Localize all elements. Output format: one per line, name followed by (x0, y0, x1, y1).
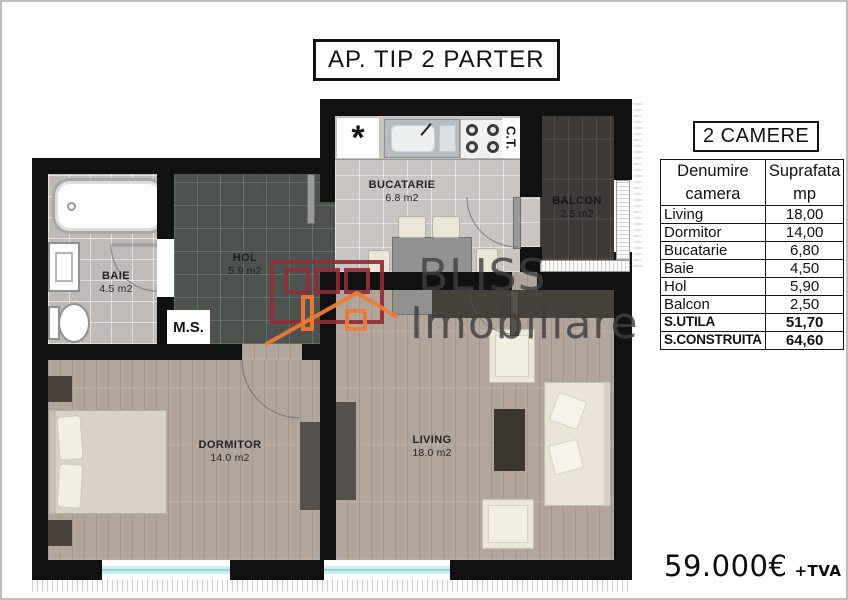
armchair (489, 329, 535, 383)
wall (230, 560, 324, 580)
room-floor-balcon (540, 116, 614, 260)
hob-symbol-icon: * (337, 118, 379, 158)
header-name-col: Denumire camera (661, 160, 766, 206)
exterior-sill-hatch (32, 580, 632, 592)
table-row: Hol5,90 (661, 278, 844, 296)
wall (32, 158, 320, 174)
door-leaf (307, 174, 315, 224)
price-amount: 59.000€ (664, 549, 787, 583)
burner-icon (466, 124, 478, 136)
table-row: Baie4,50 (661, 260, 844, 278)
room-area: 2.5 m2 (552, 208, 601, 222)
wall (614, 252, 632, 580)
room-label-baie: BAIE 4.5 m2 (99, 269, 132, 297)
apartment-type-heading: 2 CAMERE (693, 121, 819, 152)
room-area: 6.8 m2 (369, 192, 436, 206)
balcony-railing (616, 180, 630, 260)
coffee-table (494, 409, 525, 471)
room-name: DORMITOR (199, 438, 262, 452)
window (324, 560, 450, 580)
door-leaf (513, 197, 521, 249)
doorway-floor (242, 344, 302, 360)
door-leaf (510, 290, 519, 336)
wardrobe (300, 422, 320, 510)
table-header-row: Denumire camera Suprafata mp (661, 160, 844, 206)
room-label-hol: HOL 5.9 m2 (228, 251, 261, 279)
room-name: BUCATARIE (369, 178, 436, 192)
wall (537, 272, 632, 290)
balcony-railing (540, 260, 630, 272)
room-label-dormitor: DORMITOR 14.0 m2 (199, 438, 262, 466)
room-name: BAIE (99, 269, 132, 283)
wall (320, 116, 335, 202)
dining-chair (398, 216, 426, 238)
wall (32, 560, 102, 580)
washing-machine-label: M.S. (167, 310, 210, 344)
bed-pillow (57, 463, 83, 508)
dining-chair (432, 216, 460, 238)
burner-icon (487, 141, 499, 153)
sink-basin (391, 125, 435, 152)
window (102, 560, 230, 580)
wall (520, 247, 542, 272)
kitchen-sink (384, 119, 460, 158)
table-row: Bucatarie6,80 (661, 242, 844, 260)
room-area: 4.5 m2 (99, 283, 132, 297)
burner-icon (487, 124, 499, 136)
room-name: HOL (228, 251, 261, 265)
table-row-total-construita: S.CONSTRUITA64,60 (661, 332, 844, 350)
tub-drain-icon (67, 202, 76, 211)
wall (520, 116, 542, 197)
room-label-living: LIVING 18.0 m2 (412, 433, 451, 461)
burner-icon (466, 141, 478, 153)
table-row: Dormitor14,00 (661, 224, 844, 242)
table-row-total-utila: S.UTILA51,70 (661, 314, 844, 332)
price-tva-suffix: +TVA (794, 562, 841, 580)
room-area: 14.0 m2 (199, 452, 262, 466)
bathroom-sink (48, 242, 80, 292)
wall (32, 158, 48, 580)
sink-basin (55, 252, 73, 282)
header-area-col: Suprafata mp (765, 160, 844, 206)
sink-drainer (439, 125, 456, 152)
room-area: 18.0 m2 (412, 447, 451, 461)
balcony-door-floor (520, 197, 542, 247)
room-name: BALCON (552, 194, 601, 208)
stove (460, 119, 506, 159)
nightstand (46, 520, 72, 546)
room-label-balcon: BALCON 2.5 m2 (552, 194, 601, 222)
price: 59.000€ +TVA (664, 549, 841, 583)
bathtub (52, 178, 166, 234)
toilet (58, 303, 90, 343)
bed-pillow (56, 415, 83, 461)
wall (450, 560, 632, 580)
floor-plan-page: AP. TIP 2 PARTER * (0, 0, 848, 600)
wall (320, 290, 336, 560)
tv-sideboard (432, 290, 614, 318)
areas-table: Denumire camera Suprafata mp Living18,00… (660, 159, 844, 350)
nightstand (46, 376, 72, 402)
room-name: LIVING (412, 433, 451, 447)
boiler-label: C.T. (502, 118, 520, 158)
exterior-hatch (633, 102, 642, 267)
asterisk-glyph: * (351, 119, 364, 158)
wall (320, 99, 632, 116)
room-area: 5.9 m2 (228, 265, 261, 279)
wall (320, 272, 512, 290)
room-label-bucatarie: BUCATARIE 6.8 m2 (369, 178, 436, 206)
wall (614, 99, 632, 180)
armchair (482, 499, 534, 549)
wardrobe (336, 402, 356, 500)
table-row: Balcon2,50 (661, 296, 844, 314)
wall (157, 174, 174, 239)
table-row: Living18,00 (661, 206, 844, 224)
wall (32, 344, 242, 360)
